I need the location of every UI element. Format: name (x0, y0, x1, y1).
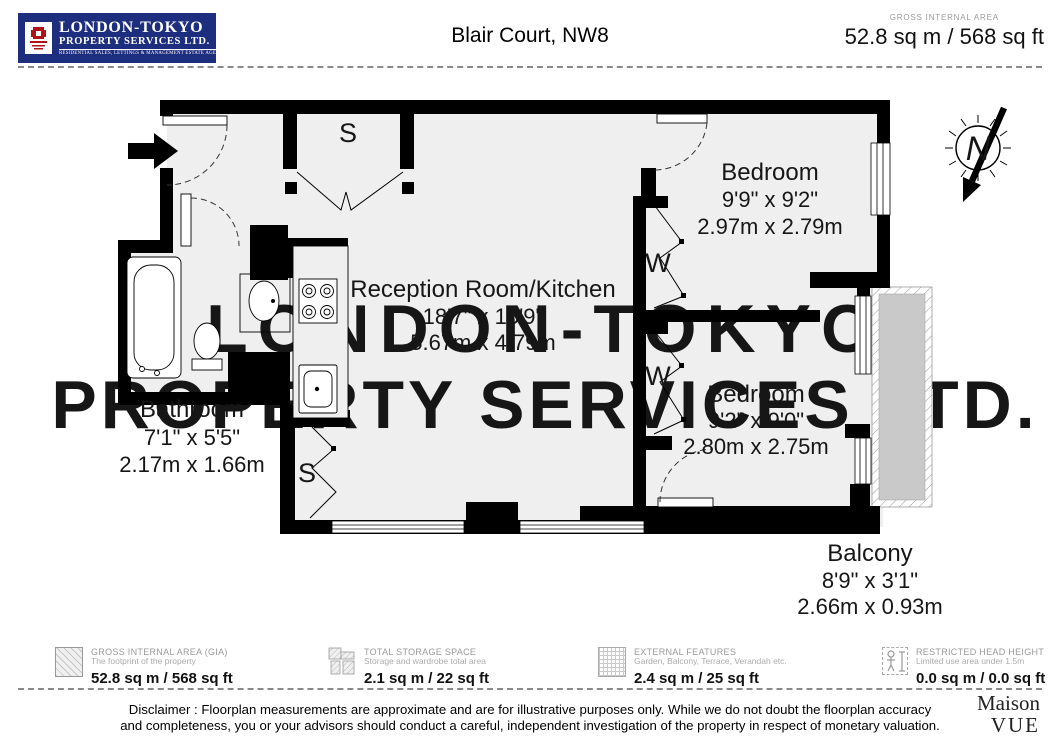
legend-value: 52.8 sq m / 568 sq ft (91, 670, 233, 687)
toilet-tank (192, 359, 222, 370)
balcony-area (872, 287, 932, 507)
legend-subtitle: Storage and wardrobe total area (364, 657, 489, 667)
legend-subtitle: The footprint of the property (91, 657, 233, 667)
disclaimer-line-2: and completeness, you or your advisors s… (0, 718, 1060, 734)
svg-text:Bedroom: Bedroom (707, 381, 804, 408)
toilet-icon (194, 323, 220, 359)
legend-gia: GROSS INTERNAL AREA (GIA) The footprint … (55, 647, 233, 687)
legend-value: 0.0 sq m / 0.0 sq ft (916, 670, 1045, 687)
brand-line-2: VUE (977, 714, 1040, 736)
wardrobe-label-1: W (645, 248, 671, 278)
svg-text:Bedroom: Bedroom (721, 159, 818, 186)
footer-divider (18, 688, 1042, 690)
legend-subtitle: Limited use area under 1.5m (916, 657, 1045, 667)
floorplan-page: LONDON-TOKYO PROPERTY SERVICES LTD. (0, 0, 1060, 749)
maison-vue-logo: Maison VUE (977, 692, 1040, 736)
svg-text:9'2" x 9'0": 9'2" x 9'0" (708, 408, 804, 433)
gia-hatch-icon (55, 647, 83, 677)
agency-tagline: RESIDENTIAL SALES, LETTINGS & MANAGEMENT… (59, 49, 249, 56)
gross-internal-area: GROSS INTERNAL AREA 52.8 sq m / 568 sq f… (845, 13, 1044, 50)
external-grid-icon (598, 647, 626, 677)
svg-text:18'7" x 15'9": 18'7" x 15'9" (423, 304, 544, 329)
legend-external: EXTERNAL FEATURES Garden, Balcony, Terra… (598, 647, 787, 687)
room-label-balcony: Balcony 8'9" x 3'1" 2.66m x 0.93m (797, 540, 943, 619)
disclaimer: Disclaimer : Floorplan measurements are … (0, 702, 1060, 734)
floorplan-drawing: LONDON-TOKYO PROPERTY SERVICES LTD. (0, 0, 1060, 749)
legend-value: 2.1 sq m / 22 sq ft (364, 670, 489, 687)
svg-text:2.80m x 2.75m: 2.80m x 2.75m (683, 434, 829, 459)
svg-text:2.97m x 2.79m: 2.97m x 2.79m (697, 214, 843, 239)
gia-value: 52.8 sq m / 568 sq ft (845, 24, 1044, 50)
gia-label: GROSS INTERNAL AREA (845, 13, 1044, 22)
svg-text:Reception Room/Kitchen: Reception Room/Kitchen (350, 276, 615, 303)
svg-text:Bathroom: Bathroom (140, 396, 244, 423)
wardrobe-label-2: W (645, 361, 671, 391)
storage-label-top: S (339, 118, 357, 148)
svg-text:5.67m x 4.79m: 5.67m x 4.79m (410, 330, 556, 355)
svg-text:9'9" x 9'2": 9'9" x 9'2" (722, 187, 818, 212)
head-height-person-icon (882, 647, 908, 675)
storage-label-bottom: S (298, 458, 316, 488)
legend-head-height: RESTRICTED HEAD HEIGHT Limited use area … (882, 647, 1045, 687)
svg-text:2.17m x 1.66m: 2.17m x 1.66m (119, 452, 265, 477)
svg-text:2.66m x 0.93m: 2.66m x 0.93m (797, 594, 943, 619)
kitchen-fixtures (293, 246, 348, 418)
legend-storage: TOTAL STORAGE SPACE Storage and wardrobe… (328, 647, 489, 687)
svg-text:7'1" x 5'5": 7'1" x 5'5" (144, 425, 240, 450)
header-divider (18, 66, 1042, 68)
svg-text:8'9" x 3'1": 8'9" x 3'1" (822, 568, 918, 593)
legend-subtitle: Garden, Balcony, Terrace, Verandah etc. (634, 657, 787, 667)
storage-blocks-icon (328, 647, 356, 680)
compass-icon: N (945, 108, 1011, 202)
disclaimer-line-1: Disclaimer : Floorplan measurements are … (0, 702, 1060, 718)
svg-text:N: N (966, 130, 991, 168)
brand-line-1: Maison (977, 692, 1040, 714)
legend-value: 2.4 sq m / 25 sq ft (634, 670, 787, 687)
svg-text:Balcony: Balcony (827, 540, 912, 567)
